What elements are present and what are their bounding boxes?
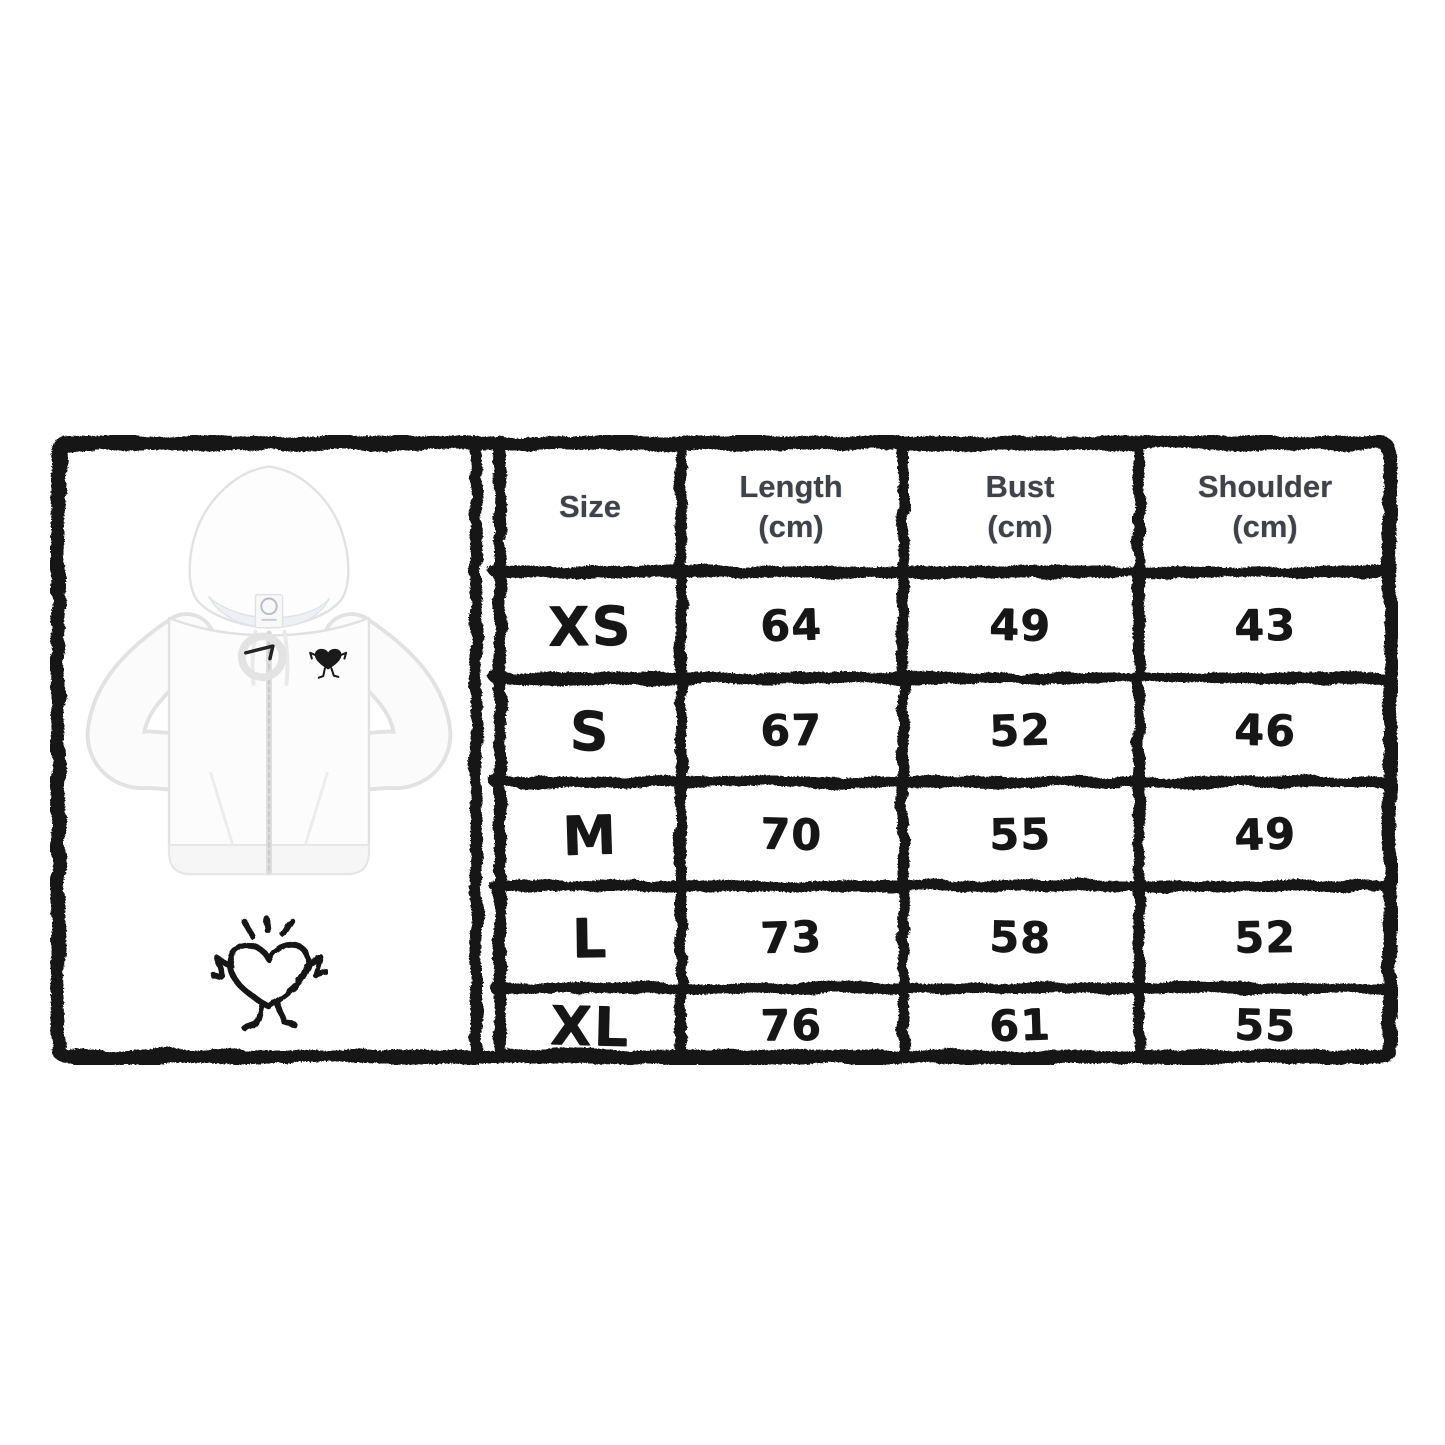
cell-s-bust: 52	[907, 682, 1134, 781]
cell-size-xl: XL	[504, 993, 675, 1059]
cell-l-bust: 58	[907, 890, 1133, 985]
cell-m-shoulder: 49	[1143, 785, 1388, 885]
cell-size-l: L	[504, 892, 675, 984]
cell-size-m: M	[504, 786, 677, 883]
cell-l-shoulder: 52	[1143, 891, 1386, 984]
cell-m-length: 70	[685, 786, 897, 883]
cell-xl-length: 76	[686, 994, 897, 1059]
cell-xs-bust: 49	[907, 576, 1133, 675]
column-header-size: Size	[505, 449, 675, 565]
size-chart-graphic: Size Length (cm) Bust (cm) Shoulder (cm)…	[0, 0, 1445, 1445]
header-label: Shoulder	[1198, 467, 1332, 507]
header-unit: (cm)	[1232, 507, 1297, 547]
cell-xl-bust: 61	[907, 991, 1133, 1060]
cell-xl-shoulder: 55	[1143, 992, 1386, 1060]
header-unit: (cm)	[987, 507, 1052, 547]
column-header-shoulder: Shoulder (cm)	[1144, 449, 1386, 565]
column-header-bust: Bust (cm)	[908, 449, 1132, 565]
cell-xs-shoulder: 43	[1143, 577, 1386, 674]
cell-m-bust: 55	[907, 787, 1132, 882]
cell-l-length: 73	[685, 890, 898, 987]
header-label: Size	[559, 487, 621, 527]
size-chart-table: Size Length (cm) Bust (cm) Shoulder (cm)…	[50, 435, 1398, 1065]
cell-size-s: S	[504, 683, 676, 779]
header-unit: (cm)	[758, 507, 823, 547]
cell-s-shoulder: 46	[1143, 682, 1387, 780]
header-label: Bust	[986, 467, 1055, 507]
column-header-length: Length (cm)	[686, 449, 896, 565]
cell-xs-length: 64	[685, 576, 898, 677]
header-label: Length	[739, 467, 842, 507]
cell-s-length: 67	[685, 684, 896, 779]
sheet: Size Length (cm) Bust (cm) Shoulder (cm)…	[50, 435, 1398, 1065]
cell-size-xs: XS	[504, 578, 675, 674]
